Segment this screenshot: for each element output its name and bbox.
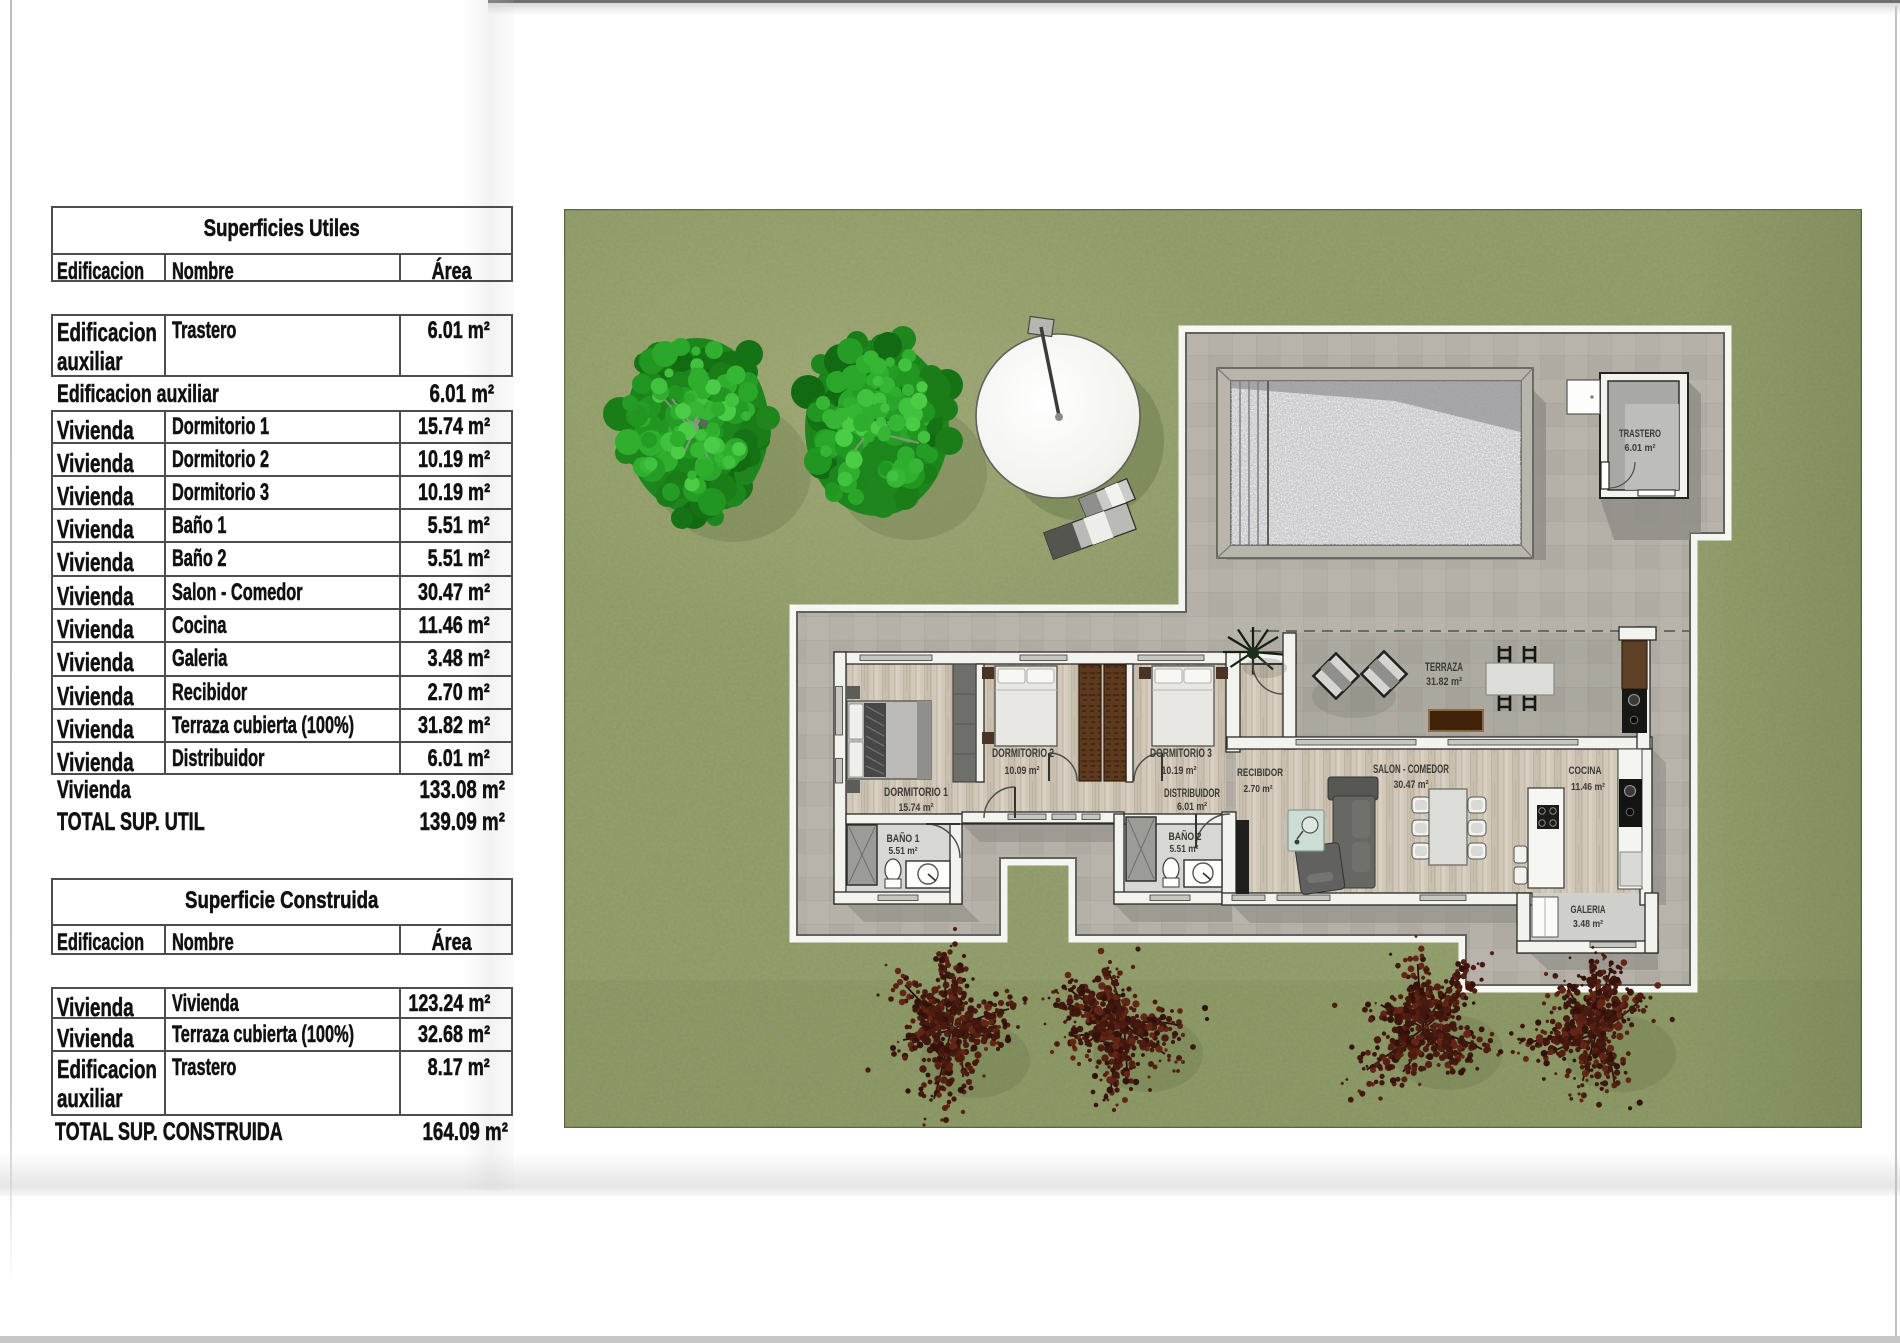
svg-text:TERRAZA: TERRAZA: [1425, 662, 1463, 674]
svg-text:TRASTERO: TRASTERO: [1619, 428, 1661, 440]
svg-text:COCINA: COCINA: [1569, 765, 1602, 777]
svg-text:DORMITORIO 2: DORMITORIO 2: [992, 746, 1054, 760]
svg-text:5.51 m²: 5.51 m²: [889, 845, 918, 857]
svg-text:DORMITORIO 3: DORMITORIO 3: [1150, 746, 1212, 760]
svg-text:GALERIA: GALERIA: [1571, 904, 1606, 916]
svg-text:15.74 m²: 15.74 m²: [899, 802, 934, 814]
svg-text:DORMITORIO 1: DORMITORIO 1: [884, 785, 948, 799]
svg-text:6.01 m²: 6.01 m²: [1625, 442, 1656, 454]
svg-text:BAÑO 1: BAÑO 1: [887, 832, 920, 845]
svg-text:10.19 m²: 10.19 m²: [1162, 765, 1197, 777]
svg-text:30.47 m²: 30.47 m²: [1394, 779, 1429, 791]
svg-text:10.09 m²: 10.09 m²: [1005, 765, 1040, 777]
svg-text:SALON - COMEDOR: SALON - COMEDOR: [1373, 762, 1449, 776]
svg-text:DISTRIBUIDOR: DISTRIBUIDOR: [1164, 786, 1220, 800]
svg-text:RECIBIDOR: RECIBIDOR: [1237, 767, 1283, 779]
svg-text:5.51 m²: 5.51 m²: [1170, 843, 1199, 855]
svg-text:11.46 m²: 11.46 m²: [1571, 781, 1605, 793]
svg-text:31.82 m²: 31.82 m²: [1426, 676, 1462, 688]
svg-text:3.48 m²: 3.48 m²: [1573, 918, 1603, 930]
svg-text:BAÑO 2: BAÑO 2: [1169, 830, 1202, 843]
svg-text:6.01 m²: 6.01 m²: [1177, 801, 1207, 813]
svg-text:2.70 m²: 2.70 m²: [1244, 783, 1273, 795]
